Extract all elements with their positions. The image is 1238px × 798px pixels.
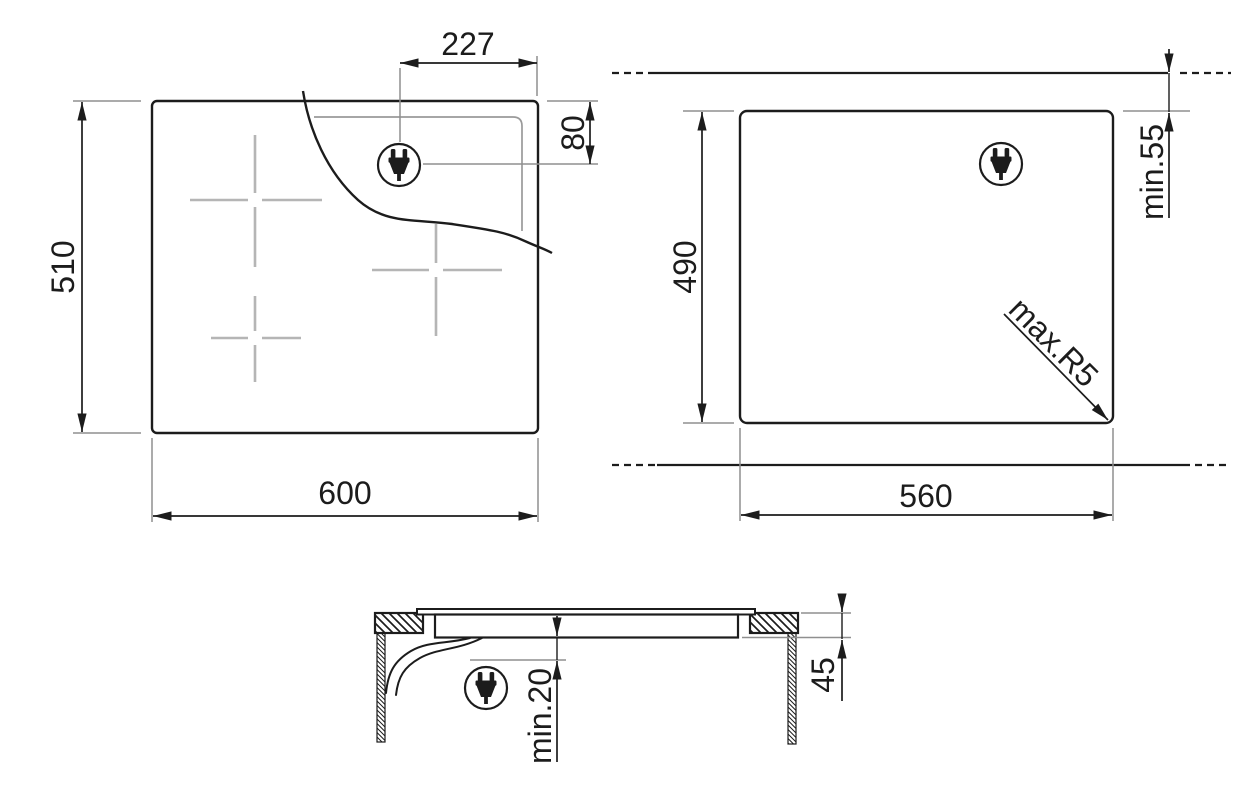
dim-label-227: 227	[441, 26, 494, 62]
dim-label-600: 600	[318, 475, 371, 511]
dim-cutout-width: 560	[740, 428, 1113, 521]
dim-cutout-depth: 490	[667, 111, 734, 423]
dim-label-560: 560	[899, 478, 952, 514]
cabinet-panel-right	[788, 633, 796, 744]
power-plug-icon	[465, 667, 507, 709]
dim-label-80: 80	[555, 115, 591, 151]
dim-label-min20: min.20	[522, 668, 558, 764]
cutout-view: min.55 490 max.R5 560	[612, 49, 1231, 521]
dim-hob-width: 600	[152, 438, 538, 522]
section-view: min.20 45	[375, 596, 851, 764]
dim-label-510: 510	[45, 240, 81, 293]
drawing-svg: 227 80 510 600	[0, 0, 1238, 798]
dim-hob-depth: 510	[45, 101, 141, 433]
cutout-outline	[740, 111, 1113, 423]
cabinet-panel-left	[377, 633, 385, 742]
installation-drawing: 227 80 510 600	[0, 0, 1238, 798]
hob-glass-outline	[152, 101, 538, 433]
worktop-section-left	[375, 613, 423, 633]
dim-label-min55: min.55	[1134, 124, 1170, 220]
hob-body-section	[435, 615, 738, 638]
dim-label-490: 490	[667, 240, 703, 293]
dim-rear-clearance: min.55	[1123, 49, 1190, 220]
top-view: 227 80 510 600	[45, 26, 598, 522]
worktop-section-right	[750, 613, 798, 633]
dim-label-45: 45	[805, 657, 841, 693]
power-cable-line	[396, 638, 482, 695]
